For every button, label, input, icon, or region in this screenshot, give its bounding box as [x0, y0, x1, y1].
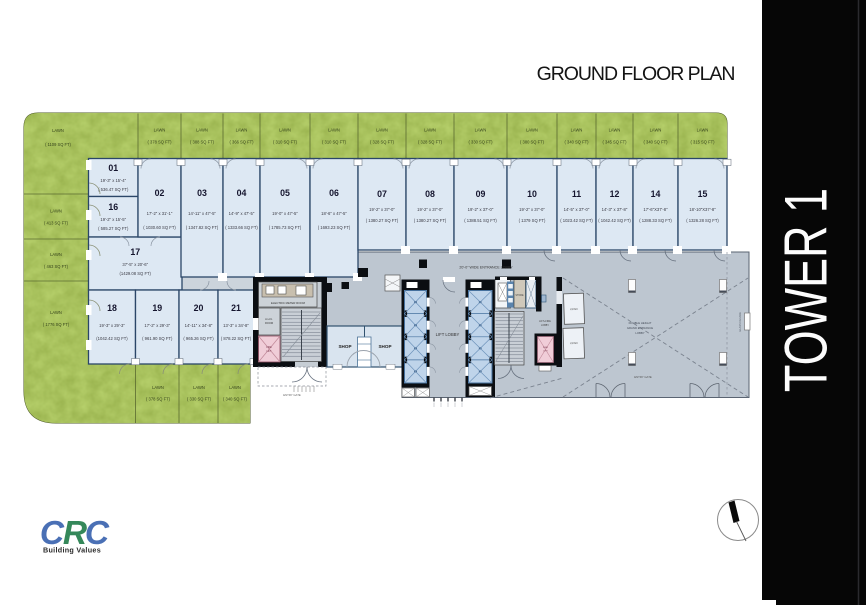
svg-text:20'-0" WIDE ENTRANCE LOBBY: 20'-0" WIDE ENTRANCE LOBBY: [459, 266, 513, 270]
svg-text:LAWN: LAWN: [229, 385, 241, 390]
svg-text:( 328 SQ FT): ( 328 SQ FT): [418, 140, 443, 145]
svg-text:LAWN: LAWN: [697, 128, 709, 133]
svg-text:LAWN: LAWN: [279, 128, 291, 133]
svg-text:ROOM: ROOM: [265, 321, 273, 325]
svg-text:( 463 SQ FT): ( 463 SQ FT): [44, 264, 69, 269]
svg-text:10: 10: [527, 189, 537, 199]
svg-text:04: 04: [237, 188, 247, 198]
svg-text:11: 11: [572, 189, 581, 199]
svg-text:LAWN: LAWN: [154, 128, 166, 133]
svg-text:14'-3" x 37'-8": 14'-3" x 37'-8": [602, 207, 628, 212]
svg-text:( 413 SQ FT): ( 413 SQ FT): [44, 221, 69, 226]
svg-text:05: 05: [280, 188, 290, 198]
svg-text:15: 15: [698, 189, 708, 199]
svg-text:17'-6"X37'-8": 17'-6"X37'-8": [643, 207, 668, 212]
svg-text:( 1030.60 SQ FT): ( 1030.60 SQ FT): [143, 225, 176, 230]
svg-text:LAWN: LAWN: [52, 128, 64, 133]
svg-text:( 961.90 SQ FT): ( 961.90 SQ FT): [142, 336, 173, 341]
svg-text:(1042.42 SQ FT): (1042.42 SQ FT): [96, 336, 128, 341]
svg-text:LIFT: LIFT: [543, 351, 548, 353]
svg-text:LAWN: LAWN: [50, 209, 62, 214]
svg-text:( 380 SQ FT): ( 380 SQ FT): [520, 140, 545, 145]
svg-text:LAWN: LAWN: [571, 128, 583, 133]
svg-text:LIFT: LIFT: [267, 350, 272, 353]
svg-text:19'-2" x 37'-0": 19'-2" x 37'-0": [417, 207, 443, 212]
svg-text:21: 21: [231, 303, 241, 313]
svg-text:LIFT+FIRE: LIFT+FIRE: [539, 320, 551, 323]
svg-text:19'-0" x 47'-5": 19'-0" x 47'-5": [272, 211, 298, 216]
svg-text:08: 08: [425, 189, 435, 199]
svg-text:14'-9" x 47'-5": 14'-9" x 47'-5": [229, 211, 255, 216]
svg-text:( 1023.42 SQ FT): ( 1023.42 SQ FT): [560, 218, 593, 223]
svg-text:( 1785.73 SQ FT): ( 1785.73 SQ FT): [269, 225, 302, 230]
svg-text:14: 14: [651, 189, 661, 199]
svg-text:GRAND ENTRANCE: GRAND ENTRANCE: [627, 326, 653, 330]
svg-text:19'-2" x 37'-0": 19'-2" x 37'-0": [519, 207, 545, 212]
svg-text:A.H.U.: A.H.U.: [265, 317, 273, 321]
svg-text:14'-11" x 34'-8": 14'-11" x 34'-8": [185, 323, 213, 328]
svg-text:( 378 SQ FT): ( 378 SQ FT): [146, 397, 171, 402]
svg-text:17: 17: [130, 247, 140, 257]
svg-text:LOBBY: LOBBY: [635, 331, 644, 335]
svg-text:ENTRY GATE: ENTRY GATE: [283, 393, 301, 397]
svg-text:( 1326.28 SQ FT): ( 1326.28 SQ FT): [686, 218, 719, 223]
svg-text:( 878.22 SQ FT): ( 878.22 SQ FT): [221, 336, 252, 341]
svg-text:( 330 SQ FT): ( 330 SQ FT): [187, 397, 212, 402]
svg-text:( 388 SQ FT): ( 388 SQ FT): [190, 140, 215, 145]
svg-text:LAWN: LAWN: [328, 128, 340, 133]
svg-text:( 1776 SQ FT): ( 1776 SQ FT): [43, 322, 70, 327]
svg-text:19'-2" x 15'-5": 19'-2" x 15'-5": [100, 217, 126, 222]
svg-text:LAWN: LAWN: [50, 310, 62, 315]
svg-text:LAWN: LAWN: [376, 128, 388, 133]
svg-text:ENTRY GATE: ENTRY GATE: [634, 375, 652, 379]
svg-text:( 1693.23 SQ FT): ( 1693.23 SQ FT): [318, 225, 351, 230]
svg-text:GLASS FACADE: GLASS FACADE: [738, 312, 742, 332]
svg-text:06: 06: [329, 188, 339, 198]
svg-text:19'-3" x 15'-4": 19'-3" x 15'-4": [100, 178, 126, 183]
svg-text:( 328 SQ FT): ( 328 SQ FT): [370, 140, 395, 145]
svg-text:( 585.27 SQ FT): ( 585.27 SQ FT): [98, 226, 129, 231]
svg-text:FIRE: FIRE: [543, 347, 549, 349]
svg-text:03: 03: [197, 188, 207, 198]
svg-text:DOUBLE HEIGHT: DOUBLE HEIGHT: [629, 321, 652, 325]
svg-text:(1429.08 SQ FT): (1429.08 SQ FT): [120, 271, 152, 276]
svg-text:GROUND FLOOR PLAN: GROUND FLOOR PLAN: [537, 63, 735, 85]
svg-text:( 536.47 SQ FT): ( 536.47 SQ FT): [98, 187, 129, 192]
svg-text:( 1379 SQ FT): ( 1379 SQ FT): [519, 218, 546, 223]
svg-text:09: 09: [476, 189, 486, 199]
svg-text:01: 01: [108, 163, 118, 173]
svg-text:LIFT LOBBY: LIFT LOBBY: [436, 332, 460, 337]
svg-text:( 1347.82 SQ FT): ( 1347.82 SQ FT): [186, 225, 219, 230]
svg-text:LAWN: LAWN: [424, 128, 436, 133]
svg-text:18: 18: [107, 303, 117, 313]
svg-text:FIRE: FIRE: [266, 346, 272, 349]
svg-text:( 340 SQ FT): ( 340 SQ FT): [644, 140, 669, 145]
svg-text:LAWN: LAWN: [475, 128, 487, 133]
svg-text:( 330 SQ FT): ( 330 SQ FT): [469, 140, 494, 145]
svg-text:14'-5" x 37'-0": 14'-5" x 37'-0": [564, 207, 590, 212]
svg-text:( 378 SQ FT): ( 378 SQ FT): [148, 140, 173, 145]
svg-text:TOWER 1: TOWER 1: [773, 188, 840, 392]
svg-text:LAWN: LAWN: [650, 128, 662, 133]
svg-text:( 310 SQ FT): ( 310 SQ FT): [273, 140, 298, 145]
svg-text:37'-5" x 20'-6": 37'-5" x 20'-6": [122, 262, 148, 267]
svg-text:14'-11" x 47'-5": 14'-11" x 47'-5": [188, 211, 216, 216]
svg-text:KIOSK: KIOSK: [570, 307, 578, 311]
svg-text:17'-2" x 29'-3": 17'-2" x 29'-3": [144, 323, 170, 328]
svg-text:( 965.26 SQ FT): ( 965.26 SQ FT): [183, 336, 214, 341]
svg-text:SHOP: SHOP: [378, 344, 391, 349]
svg-text:( 315 SQ FT): ( 315 SQ FT): [691, 140, 716, 145]
svg-text:12: 12: [610, 189, 620, 199]
svg-text:( 366 SQ FT): ( 366 SQ FT): [230, 140, 255, 145]
svg-text:LAWN: LAWN: [609, 128, 621, 133]
svg-text:( 1380.27 SQ FT): ( 1380.27 SQ FT): [414, 218, 447, 223]
svg-text:KIOSK: KIOSK: [570, 341, 578, 345]
svg-text:LAWN: LAWN: [236, 128, 248, 133]
svg-text:19: 19: [152, 303, 162, 313]
svg-text:LAWN: LAWN: [152, 385, 164, 390]
svg-text:Building Values: Building Values: [43, 546, 101, 555]
svg-text:( 1109 SQ FT): ( 1109 SQ FT): [45, 142, 71, 147]
svg-text:( 345 SQ FT): ( 345 SQ FT): [603, 140, 628, 145]
svg-text:18'-10"X37'-8": 18'-10"X37'-8": [689, 207, 716, 212]
svg-text:STORE: STORE: [515, 294, 524, 297]
svg-text:( 1042.42 SQ FT): ( 1042.42 SQ FT): [598, 218, 631, 223]
svg-text:LAWN: LAWN: [50, 252, 62, 257]
svg-text:LOBBY: LOBBY: [541, 324, 549, 327]
svg-text:18'-6" x 47'-5": 18'-6" x 47'-5": [321, 211, 347, 216]
svg-text:20: 20: [194, 303, 204, 313]
svg-text:02: 02: [155, 188, 165, 198]
svg-text:ELECTRIC METER ROOM: ELECTRIC METER ROOM: [271, 301, 306, 305]
svg-text:16: 16: [108, 202, 118, 212]
svg-text:( 1288.33 SQ FT): ( 1288.33 SQ FT): [639, 218, 672, 223]
svg-text:LAWN: LAWN: [526, 128, 538, 133]
svg-text:( 310 SQ FT): ( 310 SQ FT): [322, 140, 347, 145]
svg-text:07: 07: [377, 189, 387, 199]
svg-text:19'-2" x 37'-0": 19'-2" x 37'-0": [369, 207, 395, 212]
svg-text:( 1380.27 SQ FT): ( 1380.27 SQ FT): [366, 218, 399, 223]
svg-text:( 1388.51 SQ FT): ( 1388.51 SQ FT): [464, 218, 497, 223]
svg-text:SHOP: SHOP: [338, 344, 351, 349]
svg-text:19'-3" x 29'-3": 19'-3" x 29'-3": [99, 323, 125, 328]
svg-text:( 340 SQ FT): ( 340 SQ FT): [223, 397, 248, 402]
svg-text:19'-2" x 37'-0": 19'-2" x 37'-0": [468, 207, 494, 212]
svg-text:LAWN: LAWN: [196, 128, 208, 133]
svg-text:17'-2" x 31'-1": 17'-2" x 31'-1": [147, 211, 173, 216]
svg-text:13'-3" x 34'-8": 13'-3" x 34'-8": [223, 323, 249, 328]
svg-text:LAWN: LAWN: [193, 385, 205, 390]
svg-text:( 1333.66 SQ FT): ( 1333.66 SQ FT): [225, 225, 258, 230]
svg-text:( 340 SQ FT): ( 340 SQ FT): [565, 140, 590, 145]
